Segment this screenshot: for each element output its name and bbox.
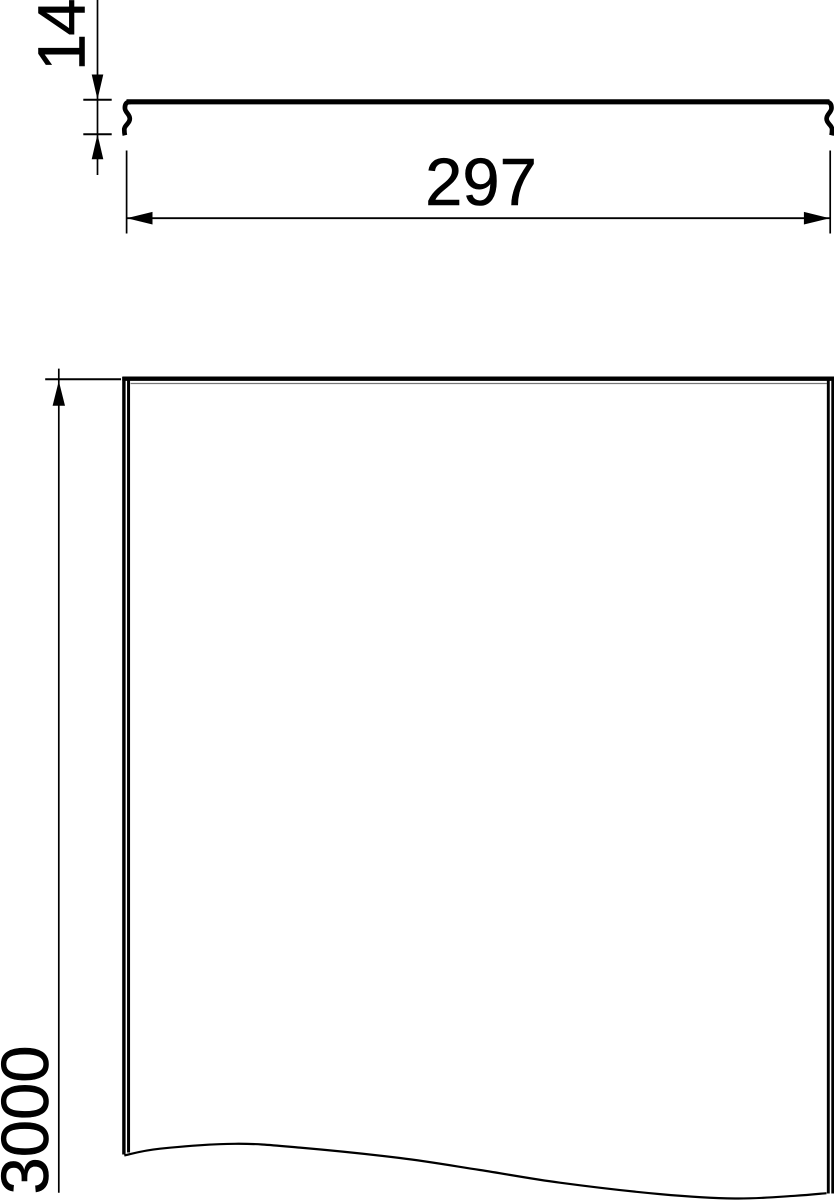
svg-text:297: 297 [425, 145, 537, 220]
svg-text:14: 14 [25, 0, 100, 71]
svg-text:3000: 3000 [0, 1045, 63, 1194]
